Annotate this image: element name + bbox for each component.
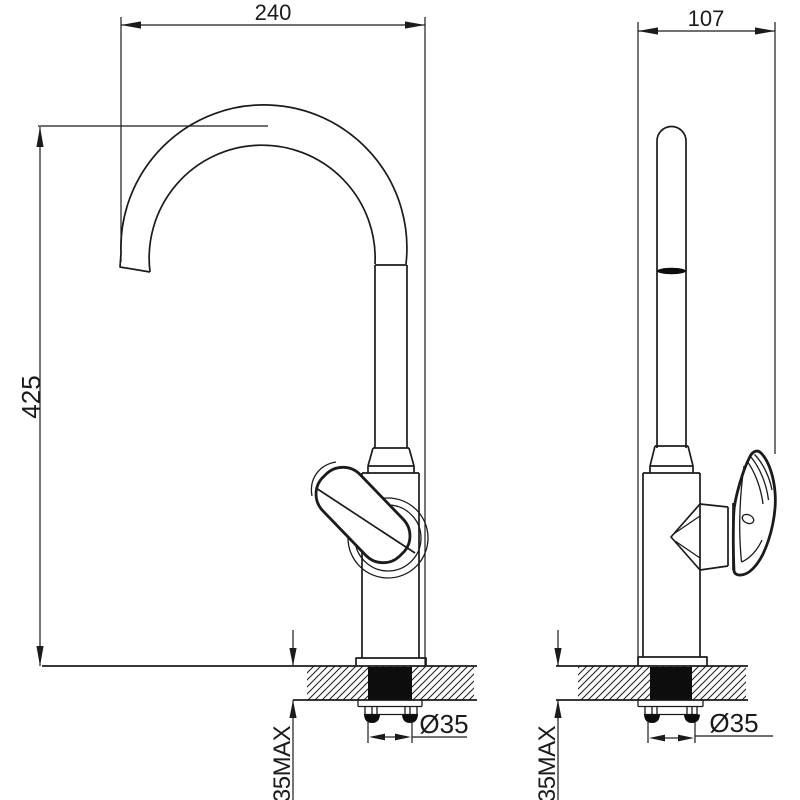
side-cartridge-cap [700, 503, 733, 570]
side-base-plate [638, 657, 707, 666]
front-countertop [42, 666, 477, 700]
front-mounting-nuts [358, 700, 422, 723]
front-spout [120, 105, 407, 448]
dim-hole-side-label: Ø35 [709, 708, 758, 738]
side-body [643, 473, 700, 657]
side-mounting-nuts [638, 700, 703, 723]
dim-35max-front-label: 35MAX [269, 725, 296, 800]
dim-hole-front-label: Ø35 [419, 709, 468, 739]
side-collar [650, 446, 693, 473]
side-valve-cone [671, 504, 700, 570]
dim-425: 425 [16, 126, 268, 666]
side-spout-outlet-seam [657, 268, 686, 274]
dim-hole-side: Ø35 [648, 708, 773, 743]
side-countertop [556, 666, 748, 700]
side-spout [657, 127, 686, 449]
side-threaded-shank [650, 667, 692, 700]
dim-35max-side-label: 35MAX [534, 725, 561, 800]
dim-240-label: 240 [255, 0, 292, 25]
dim-35max-front: 35MAX [269, 630, 297, 800]
dim-425-label: 425 [16, 375, 46, 418]
front-view: 240 425 35MAX Ø35 [16, 0, 477, 800]
drawing-svg: 240 425 35MAX Ø35 [0, 0, 800, 800]
side-handle-lever [733, 451, 775, 575]
front-collar [368, 448, 414, 473]
front-threaded-shank [368, 667, 412, 700]
side-view: 107 35MAX Ø35 [534, 6, 775, 800]
front-base-plate [356, 658, 426, 666]
dim-107-label: 107 [688, 6, 725, 31]
dim-240: 240 [121, 0, 425, 666]
dim-35max-side: 35MAX [534, 630, 562, 800]
front-handle-lever [306, 457, 420, 572]
faucet-dimension-drawing: 240 425 35MAX Ø35 [0, 0, 800, 800]
